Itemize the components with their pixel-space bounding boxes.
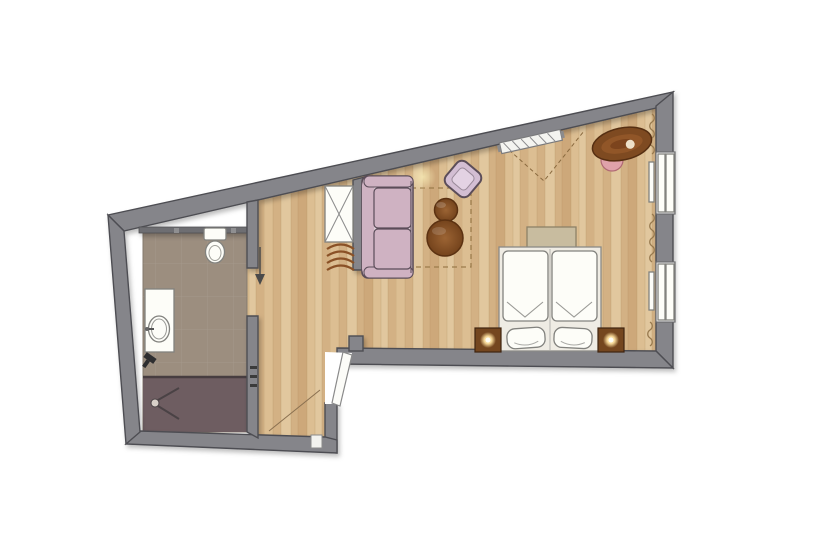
wall-pillar — [349, 336, 363, 351]
wall-accessory-left — [174, 228, 179, 233]
pillow-left — [506, 327, 545, 350]
shower — [143, 377, 247, 432]
shower-head-icon — [151, 399, 159, 407]
sofa — [362, 176, 413, 278]
wall-bathroom-top — [139, 227, 258, 233]
wardrobe — [325, 186, 353, 242]
foot-bench — [527, 227, 576, 248]
floor-plan — [0, 0, 820, 560]
ceiling-light-living — [410, 164, 436, 190]
mattress-left — [503, 251, 548, 321]
wall-accessory-right — [231, 228, 236, 233]
toilet — [204, 228, 226, 263]
entry-threshold — [311, 435, 322, 448]
washbasin-vanity — [145, 289, 174, 352]
wall-bathroom-right-upper — [247, 200, 258, 268]
floor-plan-page — [0, 0, 820, 560]
mattress-right — [552, 251, 597, 321]
pillow-right — [554, 327, 593, 349]
wall-right — [656, 92, 673, 368]
wall-left — [108, 215, 140, 444]
double-bed — [499, 247, 601, 351]
